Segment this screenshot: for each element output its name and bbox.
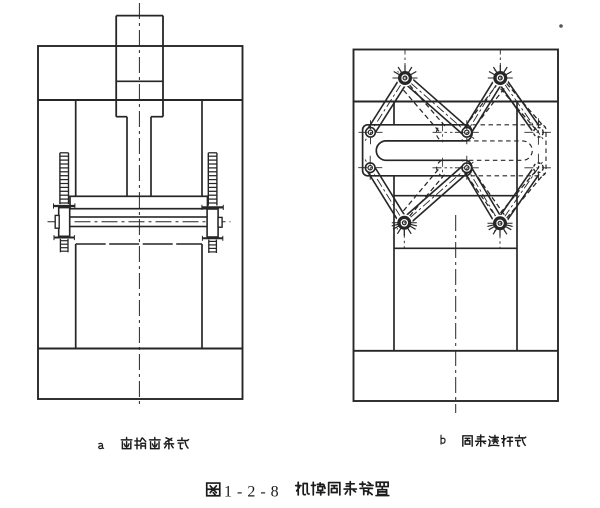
svg-text:1-2-8: 1-2-8: [224, 484, 284, 501]
